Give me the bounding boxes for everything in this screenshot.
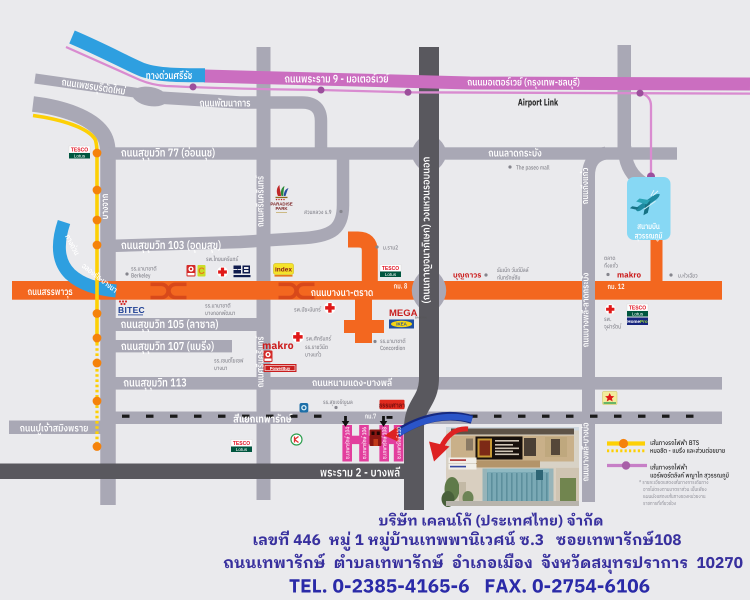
svg-text:TESCO: TESCO	[71, 147, 88, 153]
svg-text:BANGNA: BANGNA	[415, 316, 427, 320]
svg-text:TESCO: TESCO	[382, 266, 399, 272]
svg-text:Lotus: Lotus	[632, 312, 644, 317]
svg-text:PARK: PARK	[275, 206, 288, 211]
svg-text:index: index	[275, 267, 292, 274]
svg-text:Lotus: Lotus	[236, 447, 248, 452]
svg-text:IKEA: IKEA	[396, 322, 407, 327]
svg-text:TESCO: TESCO	[629, 305, 646, 311]
svg-text:C: C	[198, 266, 205, 276]
svg-text:HomePro: HomePro	[627, 319, 648, 324]
svg-text:BITEC: BITEC	[118, 305, 145, 315]
svg-text:Lotus: Lotus	[385, 272, 397, 277]
svg-text:TESCO: TESCO	[233, 441, 250, 447]
svg-text:Lotus: Lotus	[74, 154, 86, 159]
svg-text:PowerBuy: PowerBuy	[270, 366, 291, 371]
svg-text:MEGA: MEGA	[389, 308, 418, 319]
